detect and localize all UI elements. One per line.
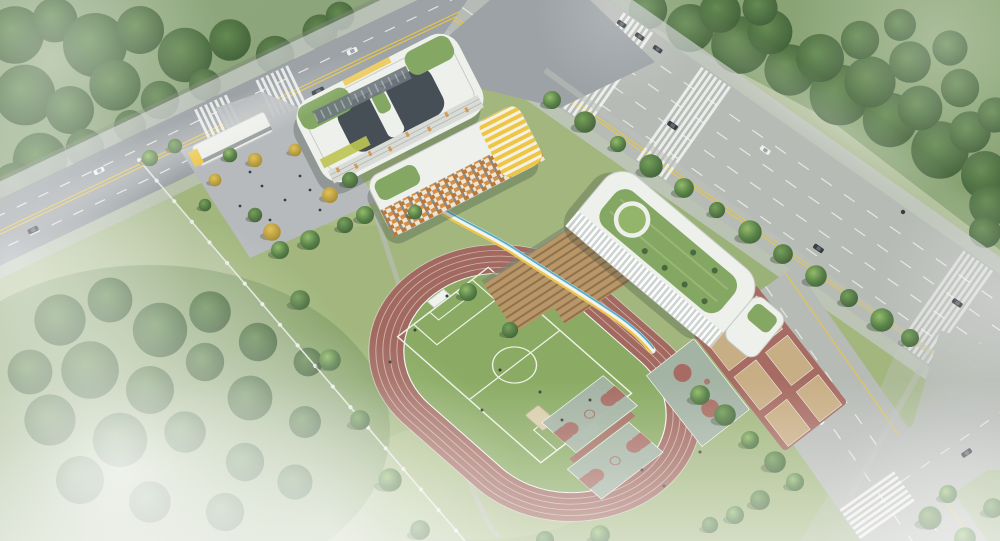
scene-canvas bbox=[0, 0, 1000, 541]
mist bbox=[0, 0, 1000, 541]
aerial-render bbox=[0, 0, 1000, 541]
